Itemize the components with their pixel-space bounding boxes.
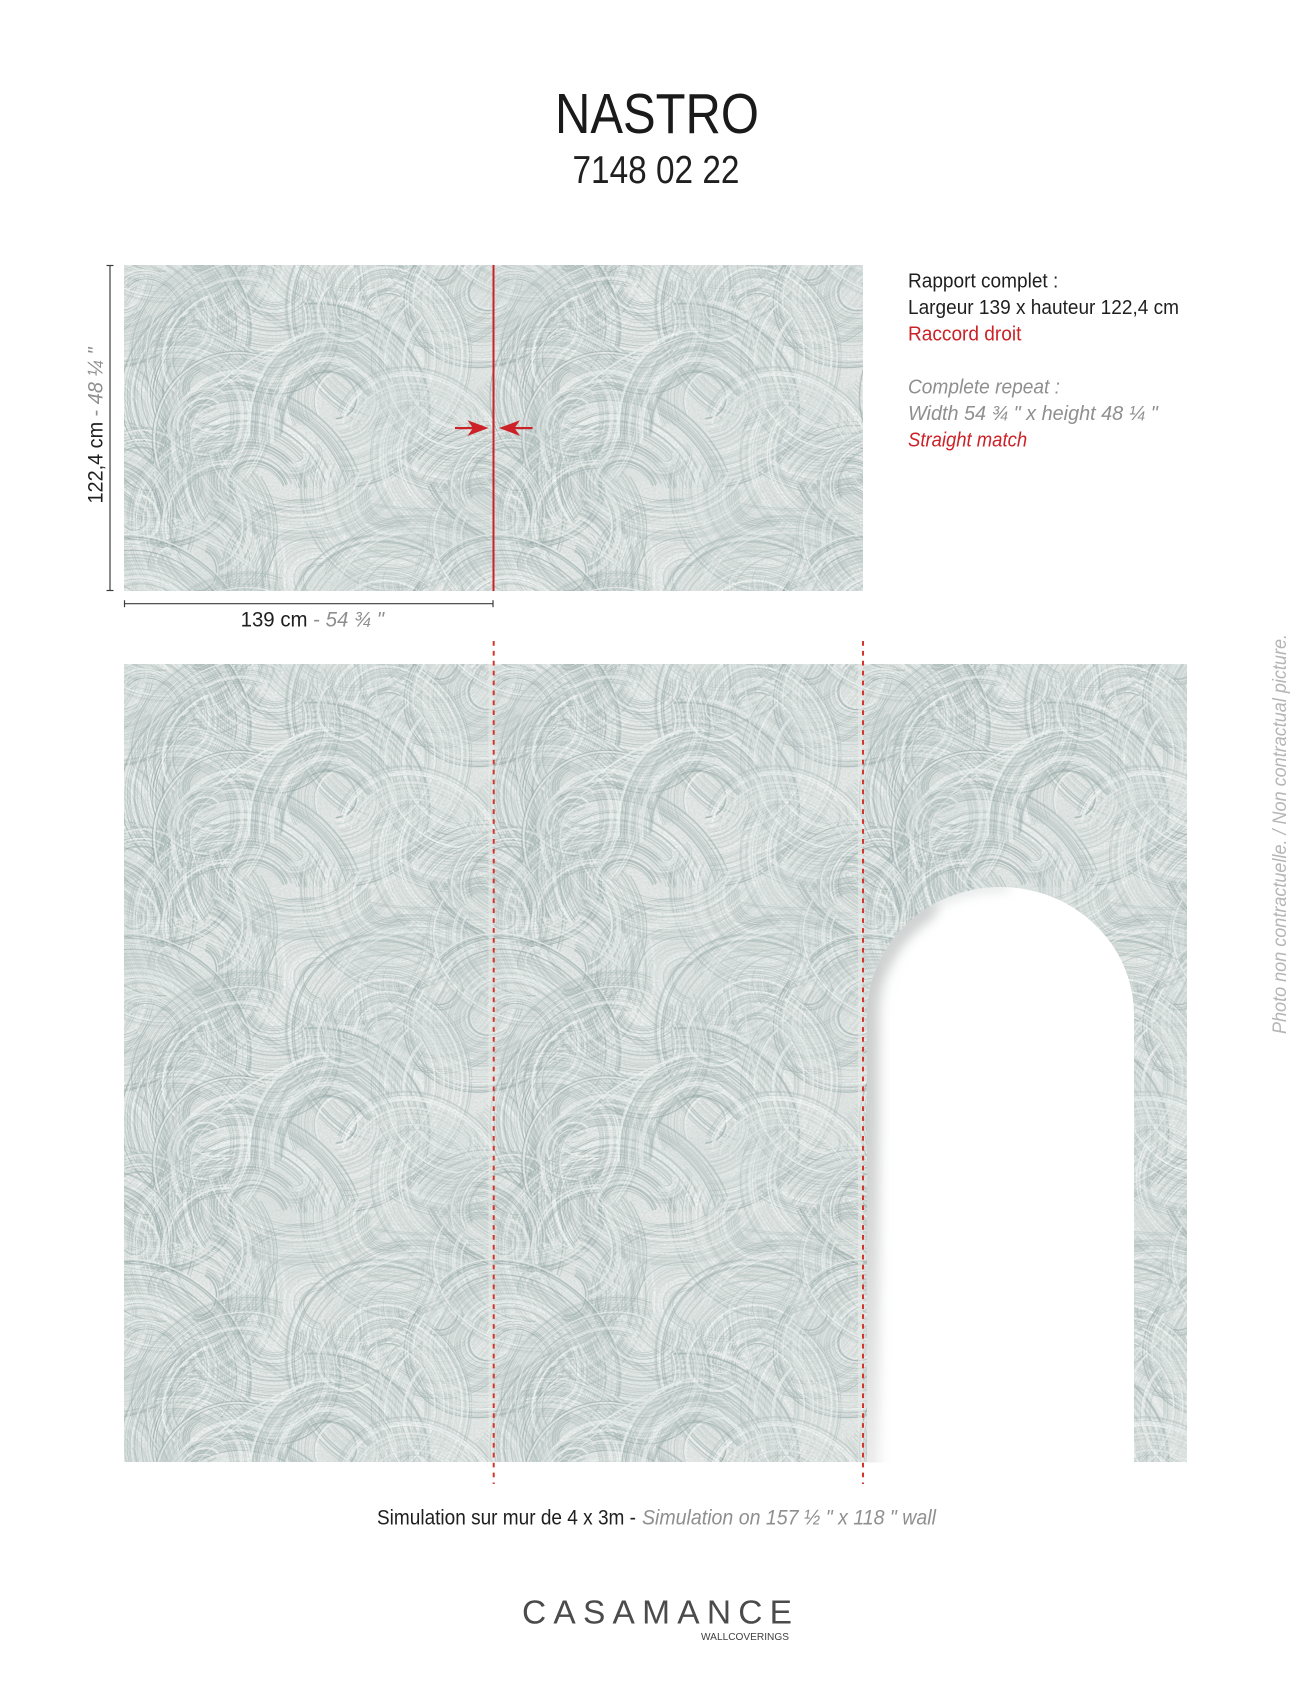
svg-text:Simulation sur mur de 4 x 3m -: Simulation sur mur de 4 x 3m - <box>377 1507 636 1530</box>
svg-text:Raccord droit: Raccord droit <box>908 323 1022 346</box>
svg-text:CASAMANCE: CASAMANCE <box>522 1595 792 1632</box>
svg-text:Rapport complet :: Rapport complet : <box>908 270 1058 293</box>
svg-text:Photo non contractuelle. / Non: Photo non contractuelle. / Non contractu… <box>1269 634 1291 1034</box>
svg-text:WALLCOVERINGS: WALLCOVERINGS <box>701 1631 789 1643</box>
svg-text:Largeur 139 x hauteur 122,4 cm: Largeur 139 x hauteur 122,4 cm <box>908 296 1179 319</box>
svg-text:Width 54 ¾ " x height 48 ¼ ": Width 54 ¾ " x height 48 ¼ " <box>908 402 1159 425</box>
svg-text:139 cm - 54 ¾ ": 139 cm - 54 ¾ " <box>241 607 386 631</box>
svg-text:Straight match: Straight match <box>908 429 1027 452</box>
svg-text:Complete repeat :: Complete repeat : <box>908 376 1060 399</box>
svg-text:Simulation on 157 ½ " x 118 ": Simulation on 157 ½ " x 118 " wall <box>642 1507 937 1530</box>
svg-text:NASTRO: NASTRO <box>555 82 759 146</box>
svg-text:7148 02 22: 7148 02 22 <box>573 149 740 192</box>
svg-text:122,4 cm - 48 ¼ ": 122,4 cm - 48 ¼ " <box>84 346 108 503</box>
